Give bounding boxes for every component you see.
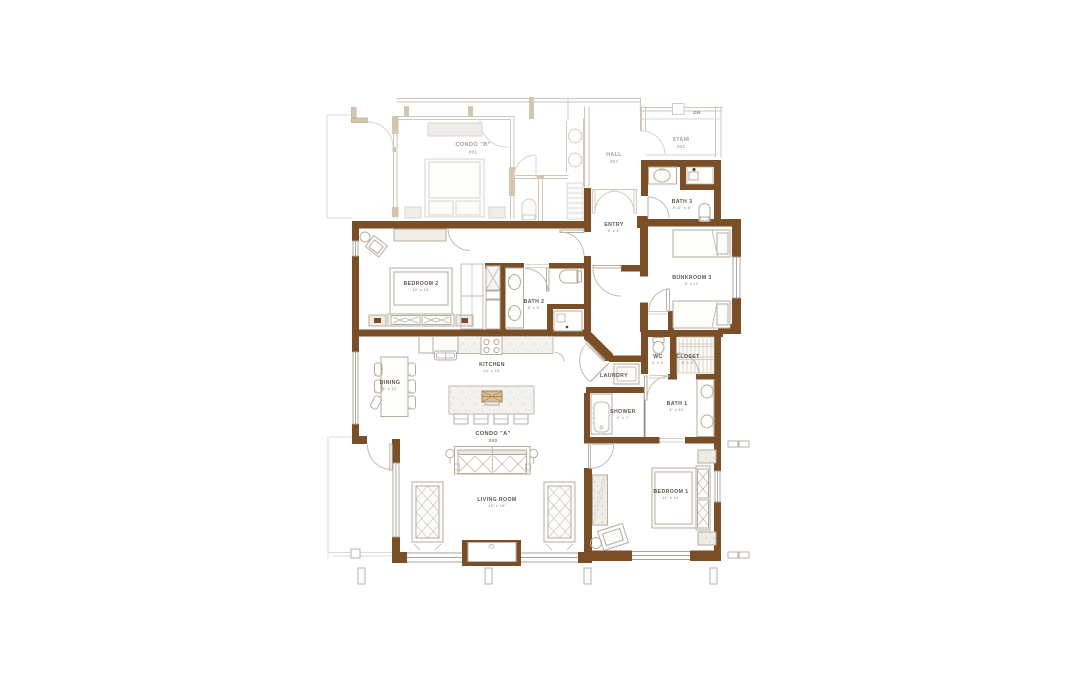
svg-text:SHOWER: SHOWER bbox=[610, 409, 636, 415]
svg-text:301: 301 bbox=[468, 150, 477, 156]
svg-text:3' x 6': 3' x 6' bbox=[652, 361, 665, 365]
svg-text:BATH 2: BATH 2 bbox=[524, 299, 545, 305]
svg-text:BUNKROOM 3: BUNKROOM 3 bbox=[672, 275, 711, 281]
svg-text:307: 307 bbox=[610, 159, 619, 164]
svg-text:4' x 7': 4' x 7' bbox=[617, 416, 630, 420]
svg-text:9' x 11': 9' x 11' bbox=[685, 282, 700, 286]
svg-text:8' x 10': 8' x 10' bbox=[670, 408, 685, 412]
svg-text:LIVING ROOM: LIVING ROOM bbox=[477, 497, 516, 503]
svg-text:9' x 12': 9' x 12' bbox=[383, 387, 398, 391]
svg-text:301: 301 bbox=[677, 144, 686, 149]
svg-text:5' x 6': 5' x 6' bbox=[608, 229, 621, 233]
svg-text:5'-6" x 8': 5'-6" x 8' bbox=[673, 206, 692, 210]
svg-text:CLOSET: CLOSET bbox=[676, 354, 700, 360]
svg-text:15' x 18': 15' x 18' bbox=[488, 504, 505, 508]
svg-text:8' x 9': 8' x 9' bbox=[528, 306, 541, 310]
svg-text:300: 300 bbox=[488, 438, 497, 444]
svg-text:DN: DN bbox=[693, 110, 701, 116]
svg-text:STAIR: STAIR bbox=[672, 137, 689, 143]
svg-text:CONDO "A": CONDO "A" bbox=[475, 431, 510, 437]
svg-text:10' x 16': 10' x 16' bbox=[483, 369, 500, 373]
svg-text:ENTRY: ENTRY bbox=[604, 222, 624, 228]
svg-text:KITCHEN: KITCHEN bbox=[479, 362, 505, 368]
svg-text:11' x 13': 11' x 13' bbox=[662, 496, 679, 500]
svg-text:BATH 1: BATH 1 bbox=[667, 401, 688, 407]
svg-text:HALL: HALL bbox=[606, 152, 622, 158]
svg-text:BATH 3: BATH 3 bbox=[672, 199, 693, 205]
svg-text:DINING: DINING bbox=[380, 380, 401, 386]
svg-text:BEDROOM 2: BEDROOM 2 bbox=[403, 281, 438, 287]
svg-text:WC: WC bbox=[653, 354, 662, 360]
svg-text:LAUNDRY: LAUNDRY bbox=[600, 373, 628, 379]
svg-text:CONDO "B": CONDO "B" bbox=[455, 142, 490, 148]
svg-text:BEDROOM 1: BEDROOM 1 bbox=[653, 489, 688, 495]
svg-text:12' x 13': 12' x 13' bbox=[412, 288, 429, 292]
svg-text:6' x 6': 6' x 6' bbox=[682, 361, 695, 365]
